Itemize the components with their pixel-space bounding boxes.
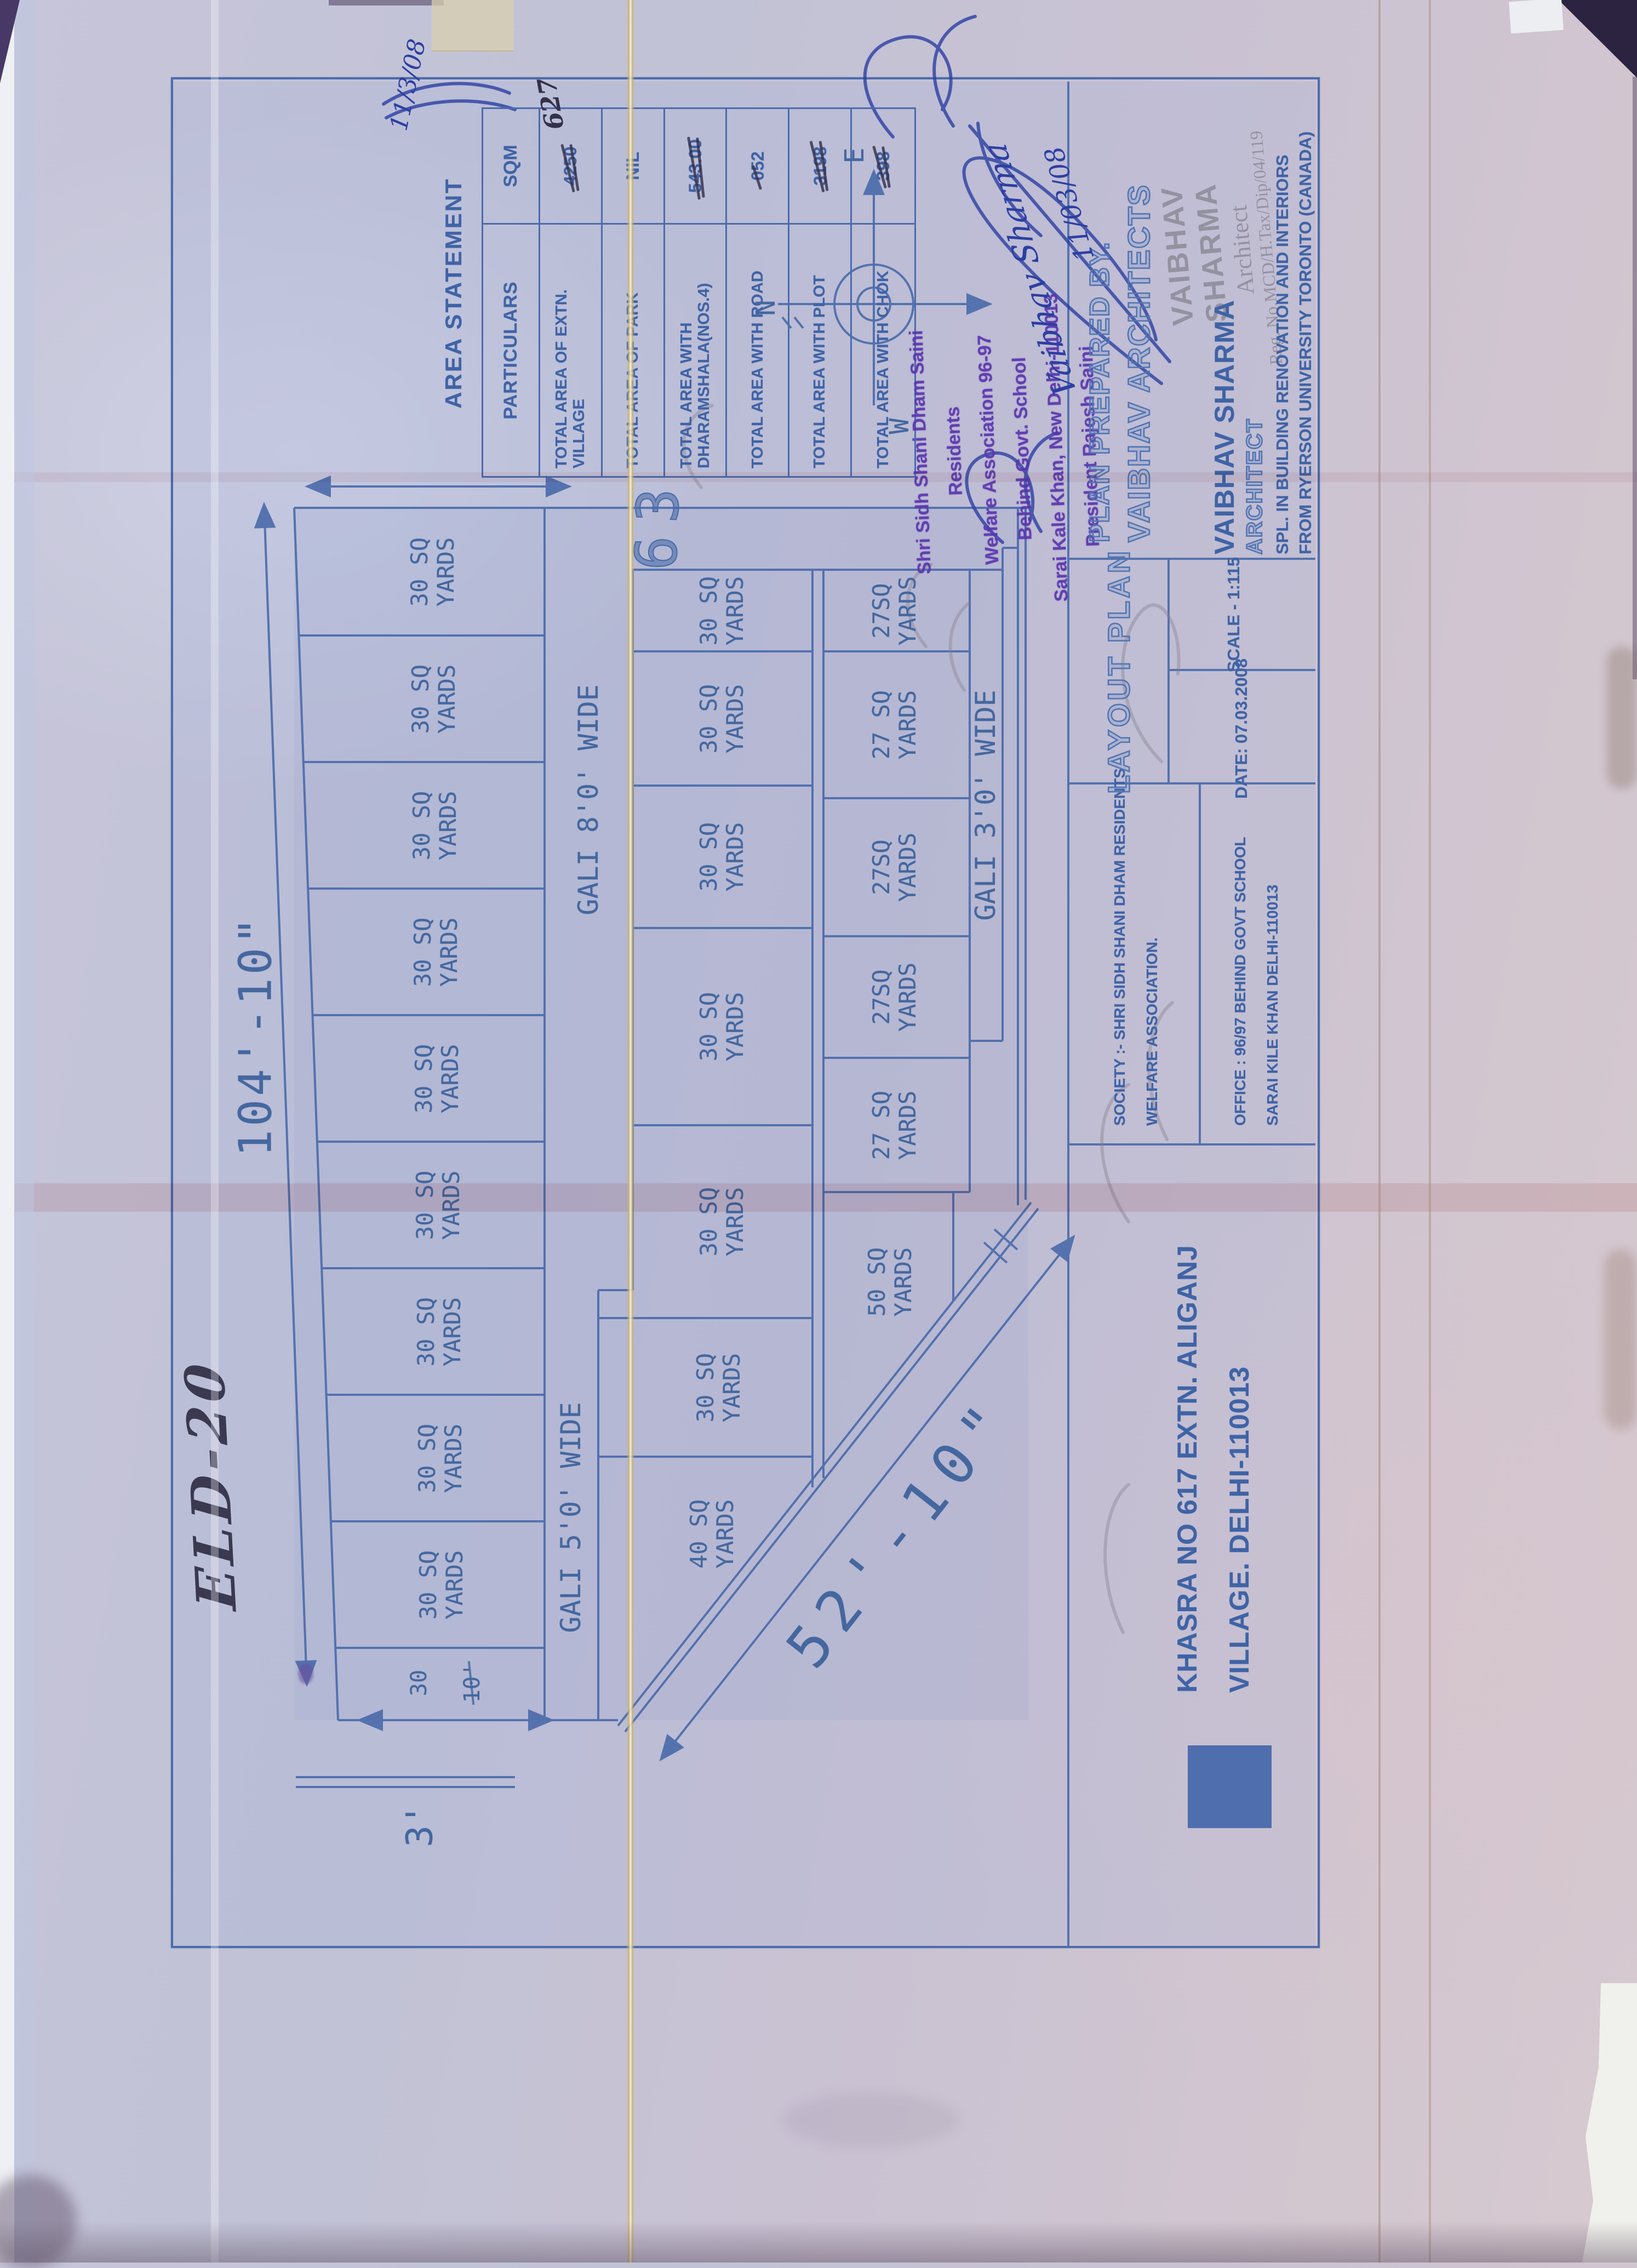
table-row-value: 543.00 (665, 109, 728, 223)
strip-area-label: 30 (407, 1670, 432, 1696)
plot-label: 30 SQ YARDS (414, 1406, 467, 1510)
plot-label: 30 SQ YARDS (407, 520, 459, 624)
table-header-particulars: PARTICULARS (483, 223, 540, 476)
plot-label: 30 SQ YARDS (696, 805, 748, 909)
plot-label: 40 SQ YARDS (686, 1482, 739, 1586)
plot-label: 50 SQ YARDS (864, 1230, 917, 1334)
dimension-width: 104'-10" (230, 914, 282, 1157)
table-row-value: 052 (727, 109, 789, 223)
table-row-particulars: TOTAL AREA WITH PLOT (789, 223, 852, 476)
date-text: DATE: 07.03.2008 (1232, 658, 1251, 799)
table-row-particulars: TOTAL AREA OF PARK (603, 223, 665, 476)
street-label-gali5: GALI 5'0' WIDE (557, 1402, 585, 1633)
plot-number: 63 (622, 474, 692, 571)
area-statement-title: AREA STATEMENT (440, 177, 467, 409)
plot-label: 27SQ YARDS (868, 815, 921, 919)
stamp-line: Shri Sidh Shani Dham Saini Residents (898, 291, 977, 611)
society-text: SOCIETY :- SHRI SIDH SHANI DHAM RESIDENT… (1104, 768, 1169, 1126)
plot-label: 30 SQ YARDS (413, 1280, 466, 1384)
khasra-square (1188, 1745, 1272, 1828)
plot-label: 30 SQ YARDS (415, 1533, 468, 1637)
plot-label: 30 SQ YARDS (696, 559, 748, 663)
khasra-text: KHASRA NO 617 EXTN. ALIGANJ VILLAGE. DEL… (1161, 1245, 1266, 1693)
plot-label: 30 SQ YARDS (409, 774, 461, 878)
plot-label: 30 SQ YARDS (692, 1336, 745, 1440)
plot-label: 30 SQ YARDS (696, 1170, 748, 1274)
society-stamp: Shri Sidh Shani Dham Saini Residents Wel… (898, 287, 1113, 612)
compass-east-label: E (839, 148, 870, 164)
table-row-particulars: TOTAL AREA WITH ROAD (727, 223, 789, 476)
street-label-gali3: GALI 3'0' WIDE (972, 690, 999, 920)
plot-label: 30 SQ YARDS (412, 1153, 465, 1257)
plot-label: 30 SQ YARDS (696, 975, 748, 1079)
table-row-value: NIL (603, 109, 665, 223)
handwritten-site-code: ELD-20 (173, 1358, 249, 1612)
table-header-sqm: SQM (483, 109, 540, 223)
table-row-value: 4250 627 (540, 109, 603, 223)
table-row-value: 398 (852, 109, 914, 223)
plot-label: 30 SQ YARDS (411, 1027, 463, 1131)
table-row-value: 3198 (789, 109, 852, 223)
plot-label: 30 SQ YARDS (696, 667, 748, 771)
table-row-particulars: TOTAL AREA OF EXTN. VILLAGE (540, 223, 603, 476)
dimension-side: 3' (399, 1803, 441, 1847)
prepared-by-line1: PLAN PREPARED BY. (1084, 241, 1115, 542)
plot-label: 27SQ YARDS (868, 945, 921, 1049)
plot-label: 30 SQ YARDS (408, 647, 460, 751)
scale-text: SCALE - 1:115 (1224, 557, 1244, 672)
street-label-gali8: GALI 8'0' WIDE (575, 684, 602, 915)
plot-label: 27 SQ YARDS (868, 673, 921, 777)
prepared-by-line2: VAIBHAV ARCHITECTS (1121, 184, 1157, 542)
compass-north-label: N (751, 300, 781, 316)
plot-label: 27 SQ YARDS (868, 1073, 921, 1177)
plot-label: 30 SQ YARDS (410, 900, 462, 1004)
office-text: OFFICE : 96/97 BEHIND GOVT SCHOOL SARAI … (1224, 837, 1289, 1126)
table-row-particulars: TOTAL AREA WITH DHARAMSHALA(NOS.4) (665, 223, 728, 476)
blueprint-sheet: AREA STATEMENT PARTICULARS SQM TOTAL ARE… (0, 0, 1637, 2263)
drawing-title: LAYOUT PLAN (1101, 548, 1137, 794)
architect-details: VAIBHAV SHARMA ARCHITECT SPL. IN BUILDIN… (1209, 131, 1315, 554)
